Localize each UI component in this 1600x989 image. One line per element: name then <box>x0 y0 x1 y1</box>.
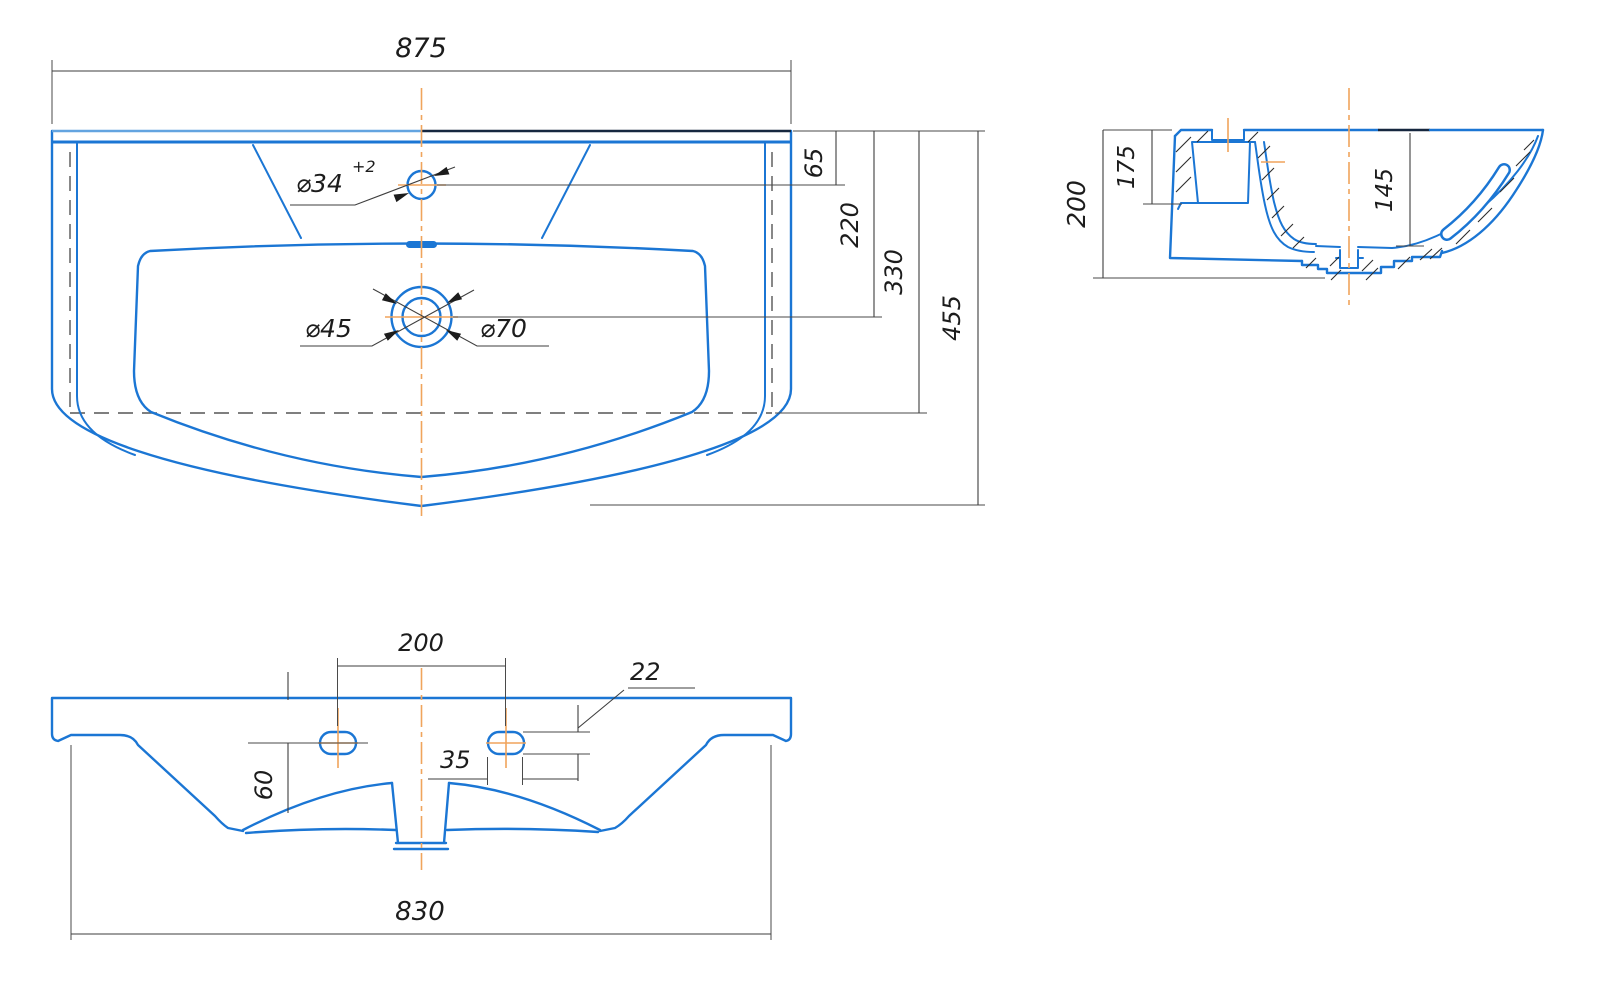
dim-faucet-dia: ⌀34 <box>296 169 343 198</box>
dim-overall-depth: 455 <box>938 295 966 341</box>
dim-22-leader <box>578 688 695 728</box>
dim-bowl-depth: 145 <box>1372 168 1398 212</box>
dim-drain-inner-dia: ⌀45 <box>305 314 352 343</box>
dim-mount-hole-length: 35 <box>440 746 471 774</box>
rim-right <box>707 142 765 455</box>
rim-channel-void <box>1447 170 1504 234</box>
rim-left <box>77 142 135 455</box>
dim-depth-to-inner-edge: 330 <box>880 249 908 295</box>
dim-overall-width: 875 <box>395 33 447 64</box>
mounting-pocket <box>1178 142 1255 209</box>
dim-drain-outer-dia: ⌀70 <box>480 314 527 343</box>
dim-back-wall-height: 175 <box>1114 145 1140 189</box>
dim-overall-height: 200 <box>1062 180 1091 228</box>
dim-base-width: 830 <box>395 897 445 927</box>
dim-faucet-tolerance: +2 <box>352 157 376 176</box>
dim-depth-to-faucet: 65 <box>800 148 828 179</box>
dim-mount-hole-spacing: 200 <box>398 629 444 657</box>
technical-drawing-sheet: 875 65 220 330 455 ⌀34 +2 ⌀45 ⌀70 <box>0 0 1600 989</box>
bottom-view: 200 60 22 35 830 <box>52 629 791 940</box>
washbasin-drawing: 875 65 220 330 455 ⌀34 +2 ⌀45 ⌀70 <box>0 0 1600 989</box>
dim-mount-hole-height: 22 <box>630 658 661 686</box>
drain-boss-front <box>392 783 449 849</box>
bowl-underside-right <box>447 783 600 832</box>
bowl-back-wall-outer <box>1255 142 1314 252</box>
top-view: 875 65 220 330 455 ⌀34 +2 ⌀45 ⌀70 <box>52 33 985 516</box>
faucet-arrow-2 <box>433 167 450 180</box>
section-view: 200 175 145 <box>1062 88 1543 308</box>
dim-mount-hole-offset: 60 <box>250 770 278 801</box>
dim-depth-to-drain: 220 <box>836 202 864 248</box>
drain-boss-steps <box>1302 251 1442 273</box>
